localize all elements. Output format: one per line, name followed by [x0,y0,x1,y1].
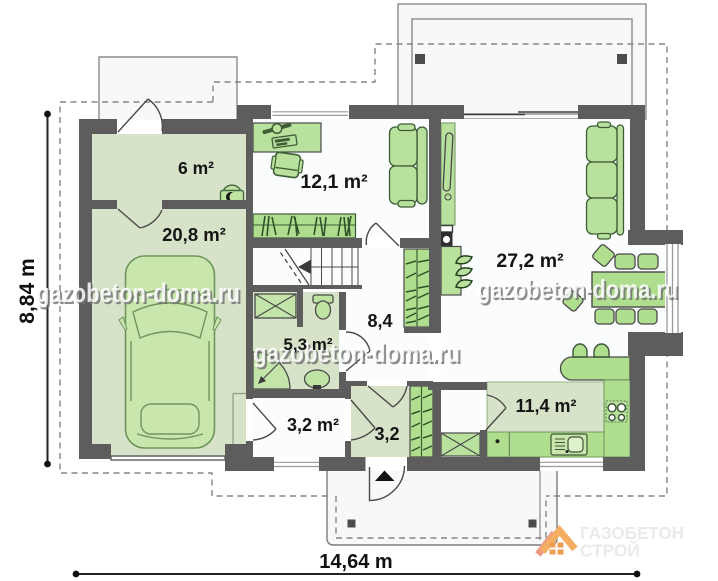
svg-text:8,4: 8,4 [367,311,392,331]
svg-text:gazobeton-doma.ru: gazobeton-doma.ru [477,274,678,304]
svg-text:6 m²: 6 m² [178,158,214,178]
svg-text:27,2 m²: 27,2 m² [496,250,564,272]
svg-text:14,64 m: 14,64 m [319,551,392,573]
svg-text:20,8 m²: 20,8 m² [162,224,226,245]
svg-text:gazobeton-doma.ru: gazobeton-doma.ru [36,278,240,308]
svg-text:5,3 m²: 5,3 m² [283,335,332,354]
svg-text:11,4 m²: 11,4 m² [515,396,576,416]
svg-text:3,2 m²: 3,2 m² [287,415,339,435]
svg-text:3,2: 3,2 [374,424,399,444]
svg-text:СТРОЙ: СТРОЙ [580,540,640,561]
svg-text:12,1 m²: 12,1 m² [300,171,368,193]
